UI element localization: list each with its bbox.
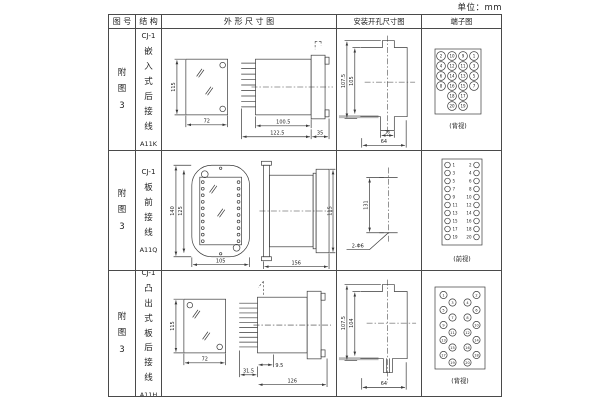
row1-structure: CJ-1 嵌入式后接线 A11K	[136, 29, 162, 151]
row1-install-cell: 107.5 105 16 64	[337, 29, 422, 151]
svg-text:16: 16	[466, 218, 472, 223]
svg-text:107.5: 107.5	[341, 74, 347, 88]
svg-text:156: 156	[291, 260, 300, 266]
svg-text:35: 35	[317, 130, 323, 136]
svg-text:15: 15	[450, 346, 454, 350]
structure-desc: 嵌入式后接线	[143, 45, 153, 134]
side-view	[242, 41, 333, 119]
svg-text:6: 6	[475, 308, 477, 312]
svg-text:17: 17	[460, 93, 466, 98]
a11q-terminal-drawing: 12 34 56 78 910 1112 1314 1516 1718 1920…	[422, 151, 501, 271]
svg-text:5: 5	[473, 73, 476, 78]
row2-terminal-cell: 12 34 56 78 910 1112 1314 1516 1718 1920…	[422, 151, 501, 271]
svg-text:20: 20	[449, 103, 455, 108]
svg-text:9.5: 9.5	[275, 363, 283, 369]
svg-text:115: 115	[170, 321, 176, 330]
dim-opening-width: 64	[362, 363, 406, 390]
svg-text:9: 9	[453, 194, 456, 199]
svg-text:15: 15	[453, 218, 459, 223]
svg-text:20: 20	[466, 234, 472, 239]
svg-text:7: 7	[451, 316, 453, 320]
structure-desc: 凸出式板后接线	[143, 282, 153, 386]
dim-hole-spacing: 131	[364, 177, 384, 232]
dimension-table: 图 号 结 构 外 形 尺 寸 图 安装开孔尺寸图 端子图 附图3 CJ-1 嵌…	[108, 14, 502, 397]
fig-no-text: 附图3	[117, 65, 127, 113]
model-text: CJ-1	[141, 271, 155, 277]
svg-text:14: 14	[474, 338, 479, 342]
svg-text:2: 2	[469, 162, 472, 167]
dim-front-height: 115	[170, 299, 183, 353]
svg-text:1: 1	[453, 162, 456, 167]
dim-front-height: 115	[171, 59, 185, 115]
row3-terminal-cell: 12 34 56 78 910 1112 1314 1516 1718 1920…	[422, 271, 501, 396]
svg-text:11: 11	[453, 202, 459, 207]
a11h-outline-drawing: 115 72	[162, 271, 336, 396]
side-view	[259, 161, 333, 260]
svg-text:2: 2	[440, 53, 443, 58]
svg-text:20: 20	[465, 361, 469, 365]
dim-outer-height: 107.5	[341, 285, 380, 361]
svg-text:10: 10	[449, 53, 455, 58]
svg-text:72: 72	[204, 118, 210, 124]
dim-front-width: 72	[186, 115, 228, 126]
dim-total-length: 126	[259, 359, 327, 387]
header-install: 安装开孔尺寸图	[337, 15, 422, 29]
svg-text:5: 5	[453, 178, 456, 183]
row3-structure: CJ-1 凸出式板后接线 A11H	[136, 271, 162, 396]
header-fig-no: 图 号	[109, 15, 136, 29]
svg-text:64: 64	[381, 139, 387, 145]
svg-text:17: 17	[441, 353, 445, 357]
spec-sheet-page: 单位：mm 图 号 结 构 外 形 尺 寸 图 安装开孔尺寸图 端子图 附图3 …	[0, 0, 600, 400]
view-label: (背视)	[449, 121, 467, 130]
row1-outline-cell: 115 72	[162, 29, 337, 151]
view-label: (背视)	[451, 376, 469, 385]
svg-text:2: 2	[475, 293, 477, 297]
model-text: CJ-1	[141, 31, 155, 40]
svg-text:100.5: 100.5	[276, 119, 290, 125]
row2-install-cell: 131 2-Φ6	[337, 151, 422, 271]
svg-text:13: 13	[441, 338, 445, 342]
svg-text:1: 1	[442, 293, 444, 297]
fig-no-text: 附图3	[117, 186, 127, 234]
svg-text:3: 3	[451, 301, 453, 305]
a11k-install-drawing: 107.5 105 16 64	[337, 29, 421, 151]
terminal-circles: 2 10 9 1 4 12 11 3 6 14 13 5 8 16 15 7 1	[437, 51, 479, 110]
model-code: A11Q	[140, 246, 158, 254]
a11h-terminal-drawing: 12 34 56 78 910 1112 1314 1516 1718 1920…	[422, 271, 501, 396]
svg-text:131: 131	[364, 200, 370, 209]
svg-text:3: 3	[473, 63, 476, 68]
svg-text:16: 16	[449, 83, 455, 88]
side-view	[240, 281, 331, 359]
svg-text:6: 6	[440, 73, 443, 78]
svg-text:15: 15	[460, 83, 466, 88]
hole-callout: 2-Φ6	[347, 232, 389, 249]
svg-text:18: 18	[474, 353, 478, 357]
svg-text:4: 4	[440, 63, 443, 68]
svg-text:19: 19	[450, 361, 454, 365]
model-text: CJ-1	[141, 167, 155, 176]
svg-text:8: 8	[440, 83, 443, 88]
model-code: A11H	[140, 391, 158, 396]
svg-text:9: 9	[462, 53, 465, 58]
row2-outline-cell: 140 125 105	[162, 151, 337, 271]
svg-text:12: 12	[465, 331, 469, 335]
svg-text:16: 16	[385, 129, 391, 134]
svg-text:11: 11	[450, 331, 454, 335]
svg-text:18: 18	[466, 226, 472, 231]
dim-body-length: 100.5	[255, 116, 311, 127]
a11k-outline-drawing: 115 72	[162, 29, 336, 151]
front-view	[184, 299, 226, 353]
dim-outer-height: 107.5	[341, 40, 380, 118]
svg-text:16: 16	[465, 346, 469, 350]
dim-inner-height: 105	[349, 47, 360, 113]
dim-width: 105	[192, 257, 250, 266]
header-structure: 结 构	[136, 15, 162, 29]
svg-text:126: 126	[288, 379, 297, 385]
header-terminal: 端子图	[422, 15, 501, 29]
svg-text:13: 13	[453, 210, 459, 215]
svg-text:105: 105	[216, 258, 225, 264]
a11q-install-drawing: 131 2-Φ6	[337, 151, 421, 271]
svg-text:2-Φ6: 2-Φ6	[352, 243, 364, 249]
svg-text:14: 14	[449, 73, 455, 78]
svg-text:13: 13	[460, 73, 466, 78]
row2-structure: CJ-1 板前接线 A11Q	[136, 151, 162, 271]
svg-text:6: 6	[469, 178, 472, 183]
svg-text:8: 8	[469, 186, 472, 191]
dim-front-width: 72	[184, 354, 226, 365]
a11h-install-drawing: 107.5 104 64	[337, 271, 421, 396]
view-label: (前视)	[453, 254, 471, 263]
fig-no-text: 附图3	[117, 309, 127, 357]
svg-text:17: 17	[453, 226, 459, 231]
dim-side-length: 156	[263, 253, 329, 268]
svg-text:105: 105	[349, 76, 355, 85]
panel-cutout-profile	[361, 40, 407, 130]
header-outline: 外 形 尺 寸 图	[162, 15, 337, 29]
svg-text:125: 125	[178, 206, 184, 215]
svg-text:10: 10	[474, 323, 478, 327]
svg-text:19: 19	[460, 103, 466, 108]
svg-text:19: 19	[453, 234, 459, 239]
svg-text:72: 72	[202, 357, 208, 363]
front-view	[186, 59, 228, 115]
dim-inner-height: 104	[349, 292, 360, 356]
svg-text:140: 140	[170, 206, 176, 215]
row3-fig-no: 附图3	[109, 271, 136, 396]
row3-outline-cell: 115 72	[162, 271, 337, 396]
svg-text:104: 104	[349, 318, 355, 327]
row1-fig-no: 附图3	[109, 29, 136, 151]
a11k-terminal-drawing: 2 10 9 1 4 12 11 3 6 14 13 5 8 16 15 7 1	[422, 29, 501, 151]
svg-text:115: 115	[171, 82, 177, 91]
dim-lip-length: 9.5	[259, 355, 283, 369]
a11q-outline-drawing: 140 125 105	[162, 151, 336, 271]
svg-text:5: 5	[442, 308, 444, 312]
svg-text:7: 7	[473, 83, 476, 88]
row1-terminal-cell: 2 10 9 1 4 12 11 3 6 14 13 5 8 16 15 7 1	[422, 29, 501, 151]
svg-text:18: 18	[449, 93, 455, 98]
model-code: A11K	[140, 140, 157, 148]
unit-label: 单位：mm	[457, 1, 502, 13]
terminal-circles: 12 34 56 78 910 1112 1314 1516 1718 1920	[440, 291, 480, 366]
terminal-circles: 12 34 56 78 910 1112 1314 1516 1718 1920	[445, 162, 480, 240]
svg-text:4: 4	[469, 170, 472, 175]
svg-text:12: 12	[466, 202, 472, 207]
svg-text:122.5: 122.5	[270, 130, 284, 136]
svg-text:115: 115	[327, 206, 333, 215]
dim-pin-length: 31.5	[240, 351, 258, 377]
svg-text:107.5: 107.5	[341, 316, 347, 330]
dim-inner-height: 125	[178, 170, 184, 252]
svg-text:31.5: 31.5	[243, 369, 254, 375]
svg-text:7: 7	[453, 186, 456, 191]
svg-text:14: 14	[466, 210, 472, 215]
svg-text:9: 9	[442, 323, 444, 327]
svg-text:11: 11	[460, 63, 466, 68]
svg-text:64: 64	[381, 381, 387, 387]
structure-desc: 板前接线	[144, 181, 154, 241]
svg-text:4: 4	[466, 301, 469, 305]
svg-text:1: 1	[473, 53, 476, 58]
svg-text:12: 12	[449, 63, 455, 68]
row2-fig-no: 附图3	[109, 151, 136, 271]
svg-text:3: 3	[453, 170, 456, 175]
dim-flange-length: 35	[313, 118, 329, 138]
dim-side-height: 115	[327, 169, 335, 253]
front-view	[192, 165, 250, 256]
row3-install-cell: 107.5 104 64	[337, 271, 422, 396]
svg-text:10: 10	[466, 194, 472, 199]
svg-text:8: 8	[466, 316, 468, 320]
